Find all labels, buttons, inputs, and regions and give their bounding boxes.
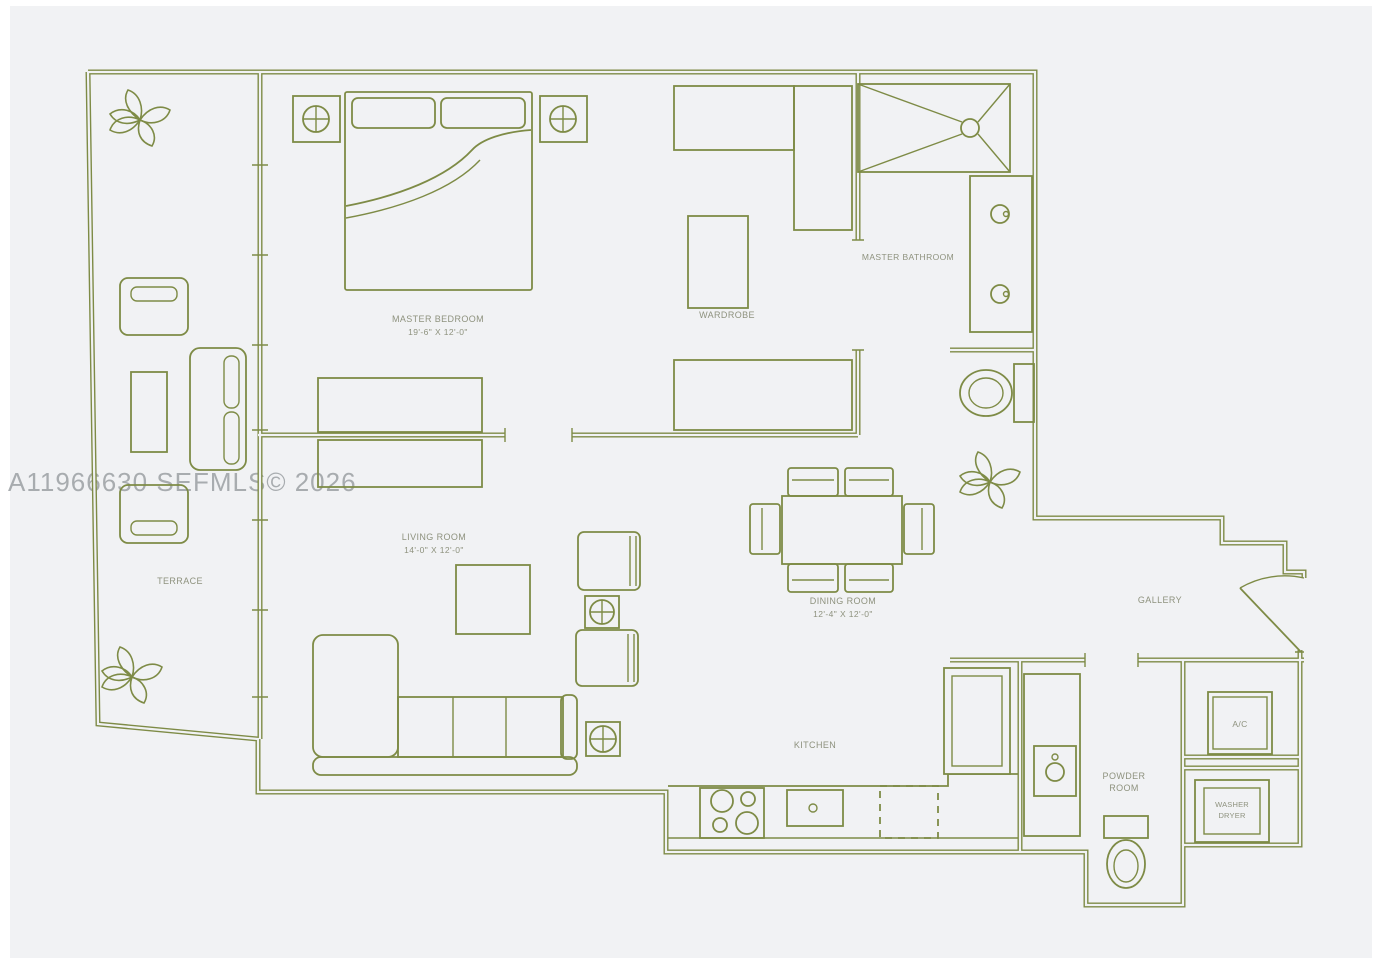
label-powder-room-line1: POWDER bbox=[1103, 771, 1146, 781]
label-kitchen: KITCHEN bbox=[794, 740, 836, 750]
floorplan-canvas: A11966630 SEFMLS© 2026 bbox=[0, 0, 1380, 966]
label-washer: WASHER bbox=[1215, 800, 1249, 809]
label-dining-room: DINING ROOM bbox=[810, 596, 876, 606]
mls-watermark: A11966630 SEFMLS© 2026 bbox=[8, 467, 357, 497]
floorplan-svg: A11966630 SEFMLS© 2026 bbox=[0, 0, 1380, 966]
dims-living-room: 14'-0" X 12'-0" bbox=[404, 545, 464, 555]
label-dryer: DRYER bbox=[1218, 811, 1246, 820]
label-master-bedroom: MASTER BEDROOM bbox=[392, 314, 484, 324]
dims-master-bedroom: 19'-6" X 12'-0" bbox=[408, 327, 468, 337]
label-powder-room-line2: ROOM bbox=[1109, 783, 1139, 793]
label-terrace: TERRACE bbox=[157, 576, 203, 586]
label-ac: A/C bbox=[1232, 719, 1247, 729]
fridge bbox=[944, 668, 1010, 774]
label-wardrobe: WARDROBE bbox=[699, 310, 755, 320]
label-gallery: GALLERY bbox=[1138, 595, 1182, 605]
dims-dining-room: 12'-4" X 12'-0" bbox=[813, 609, 873, 619]
label-master-bathroom: MASTER BATHROOM bbox=[862, 252, 954, 262]
label-living-room: LIVING ROOM bbox=[402, 532, 466, 542]
